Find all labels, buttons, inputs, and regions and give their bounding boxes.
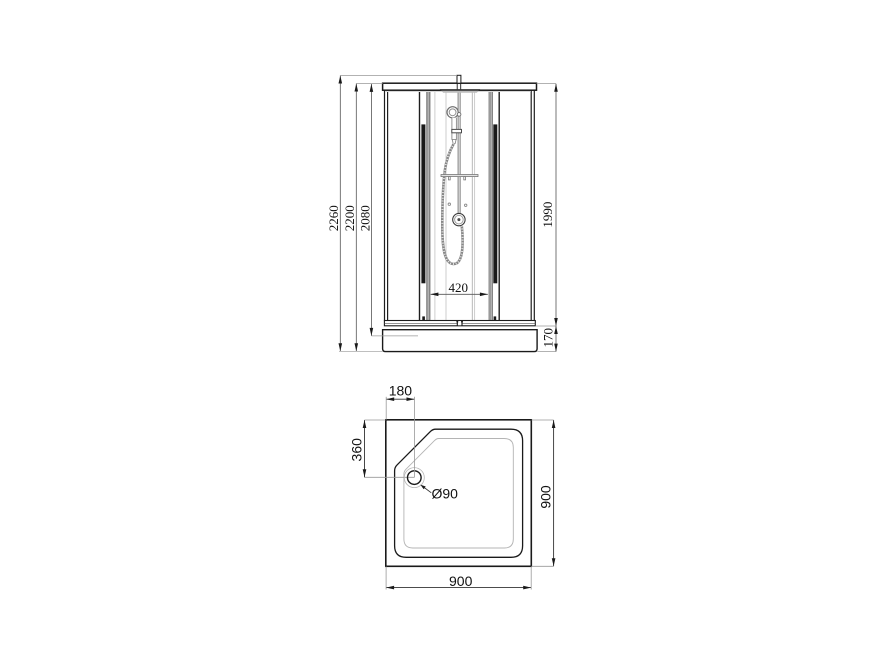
svg-text:360: 360 (348, 438, 364, 462)
svg-text:2200: 2200 (342, 205, 357, 231)
svg-text:420: 420 (449, 280, 469, 295)
svg-text:900: 900 (449, 573, 473, 589)
svg-text:170: 170 (541, 328, 556, 348)
svg-text:2080: 2080 (358, 205, 373, 231)
svg-text:Ø90: Ø90 (432, 486, 459, 502)
svg-text:1990: 1990 (540, 202, 555, 228)
svg-text:2260: 2260 (326, 205, 341, 231)
svg-text:180: 180 (389, 383, 413, 399)
svg-text:900: 900 (538, 485, 554, 509)
